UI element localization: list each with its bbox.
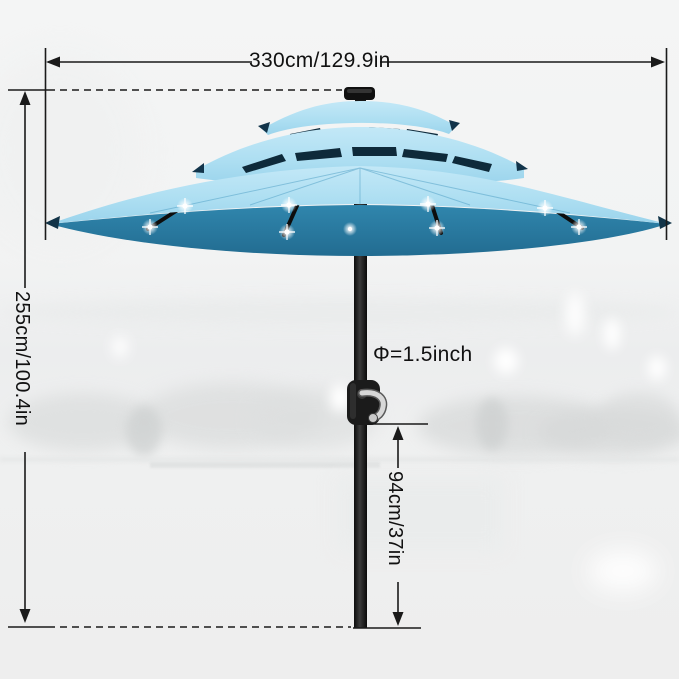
led-light [420, 196, 436, 212]
led-light [537, 200, 553, 216]
led-light [281, 197, 297, 213]
led-light [142, 219, 158, 235]
width-dimension-label: 330cm/129.9in [249, 50, 383, 71]
led-light [343, 222, 357, 236]
canopy-tier-3 [45, 166, 672, 256]
led-light [429, 220, 445, 236]
arrow-left-icon [46, 57, 60, 68]
arrow-down-icon [393, 612, 404, 626]
arrow-down-icon [20, 609, 31, 623]
led-light [279, 224, 295, 240]
solar-panel-cap [344, 87, 375, 100]
height-dimension-label: 255cm/100.4in [12, 291, 32, 426]
pole-diameter-label: Φ=1.5inch [373, 344, 472, 365]
led-light [177, 198, 193, 214]
umbrella-illustration [0, 0, 679, 679]
led-light [571, 219, 587, 235]
product-dimension-diagram: 330cm/129.9in 255cm/100.4in Φ=1.5inch 94… [0, 0, 679, 679]
arrow-right-icon [651, 57, 665, 68]
arrow-up-icon [20, 91, 31, 105]
crank-height-label: 94cm/37in [385, 471, 405, 566]
tilt-crank [347, 380, 383, 425]
arrow-up-icon [393, 426, 404, 440]
